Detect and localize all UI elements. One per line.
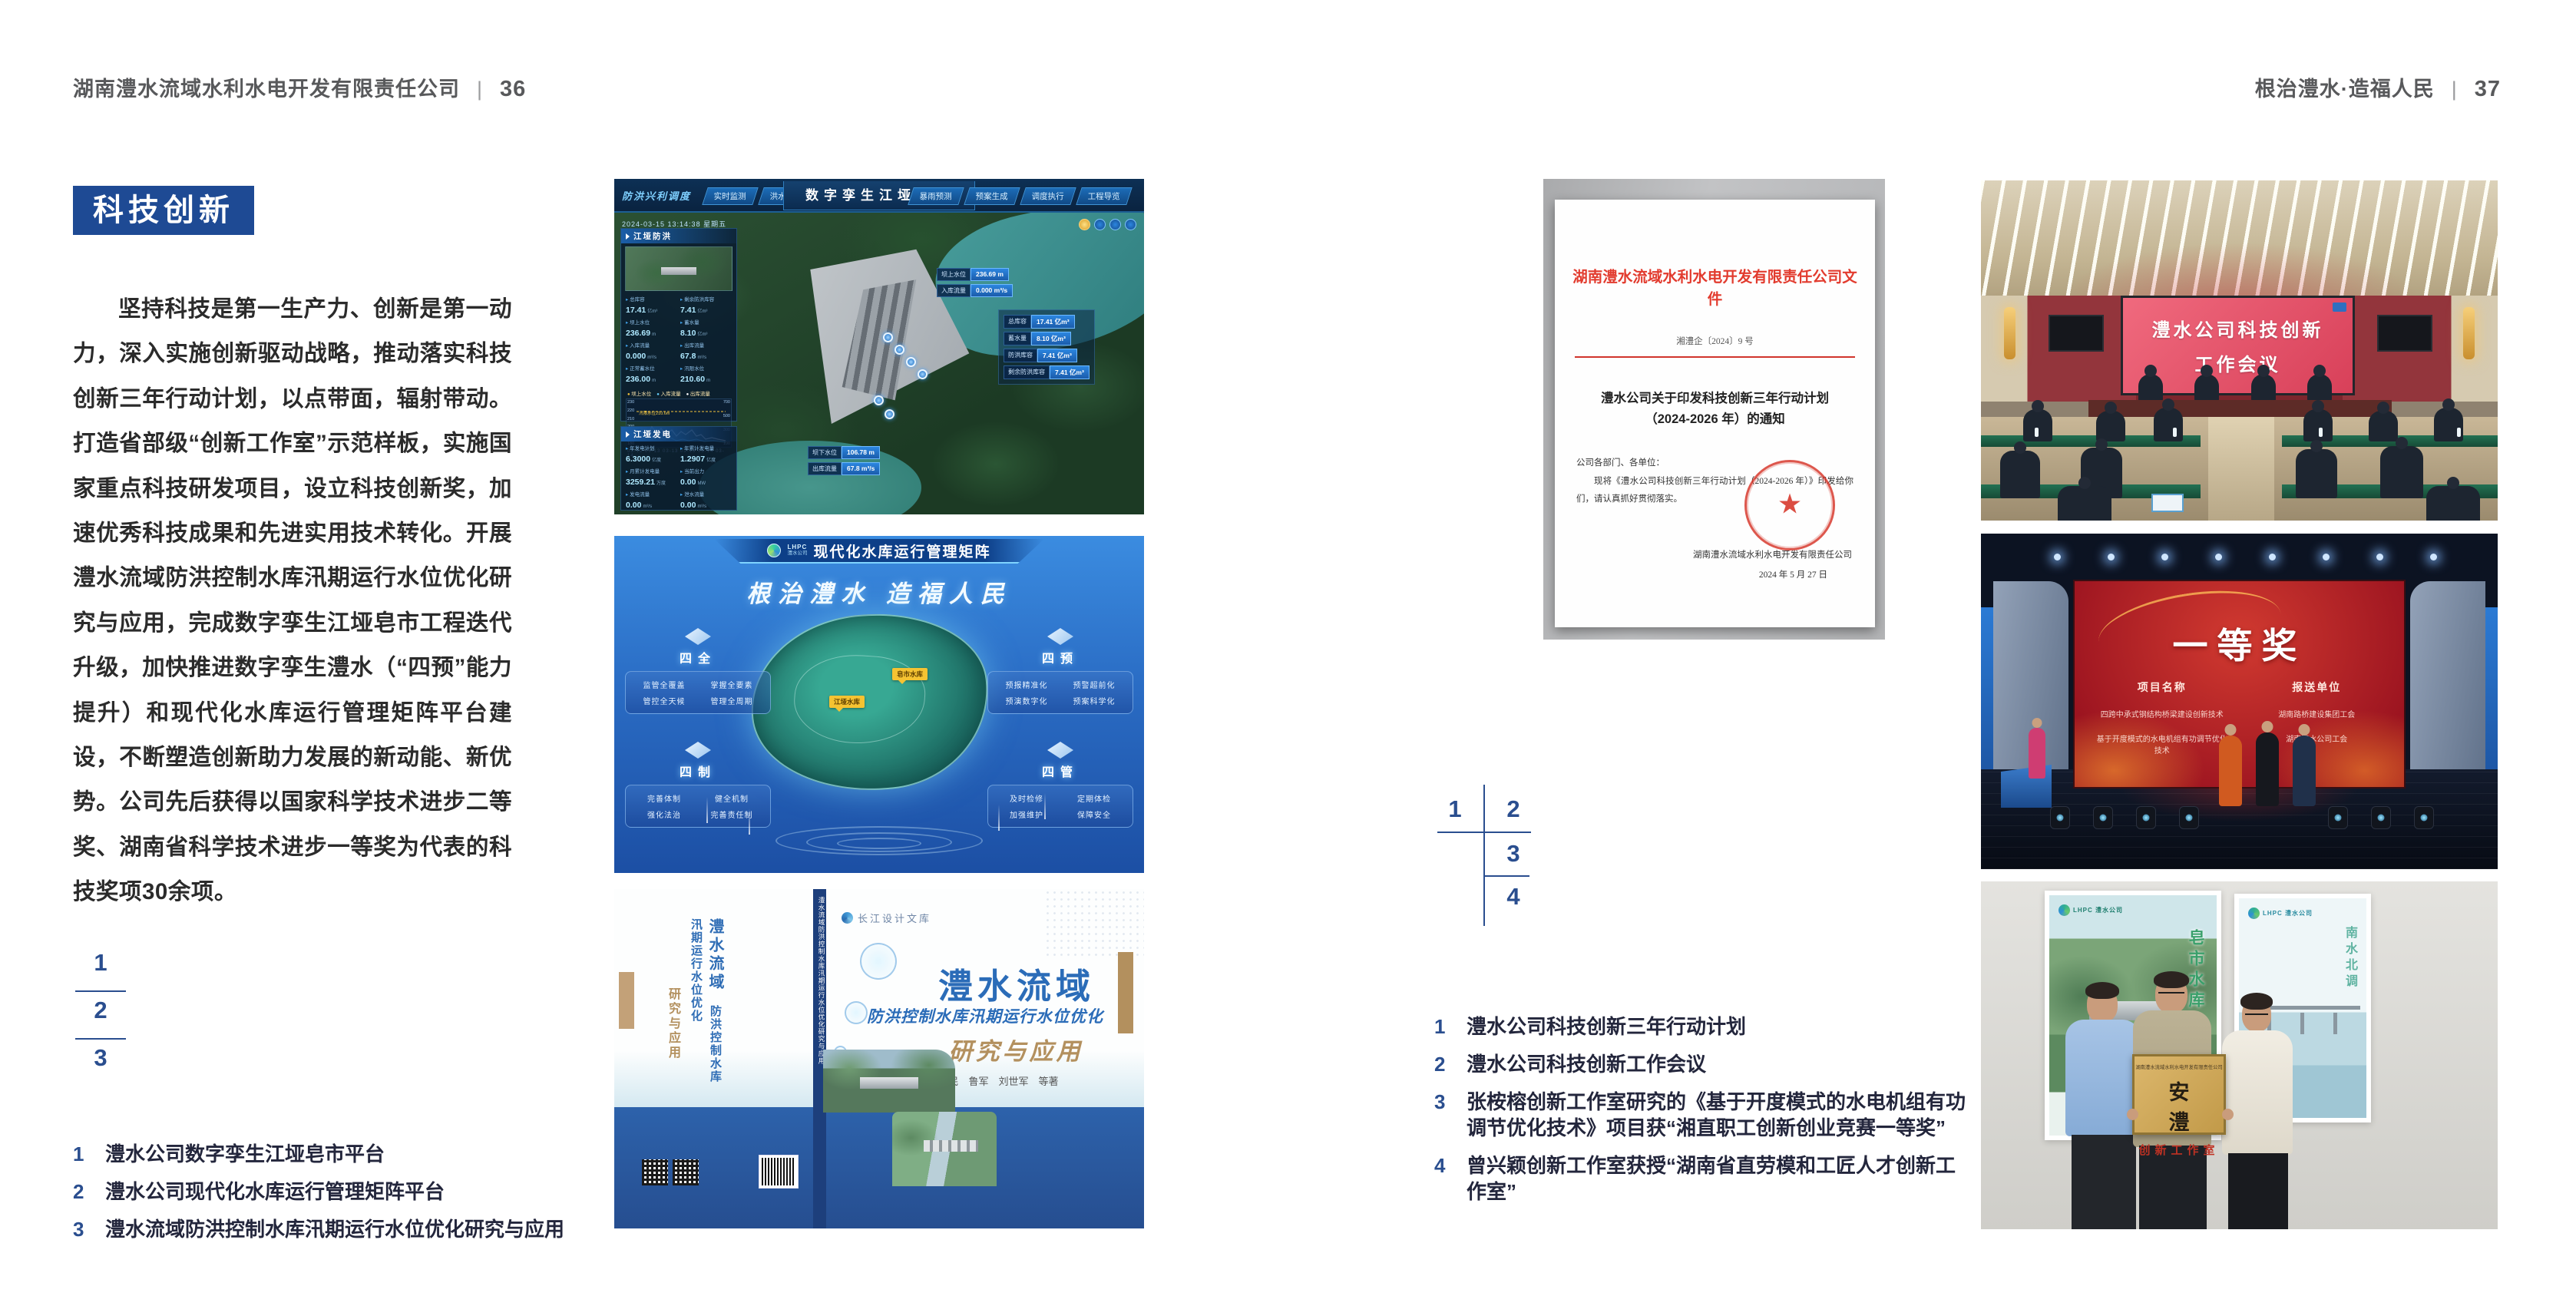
locate-icon[interactable] bbox=[1109, 219, 1121, 230]
bridge-pier bbox=[2333, 1013, 2337, 1034]
flood-control-panel: 江垭防洪 总库容17.41亿m³ 剩余防洪库容7.41亿m³ 坝上水位236.6… bbox=[620, 228, 737, 422]
light-pillar bbox=[1044, 793, 1046, 819]
stat-label: 出库流量 bbox=[680, 341, 732, 349]
quadrant-title: 四全 bbox=[625, 648, 771, 666]
water-bottle bbox=[2319, 428, 2323, 437]
publisher-logo: 长江设计文库 bbox=[842, 911, 931, 925]
person-hand bbox=[2127, 1109, 2138, 1120]
chart-legend: 坝上水位 入库流量 出库流量 bbox=[621, 388, 736, 397]
figure-number-1: 1 bbox=[1431, 795, 1479, 823]
bridge-pier bbox=[2300, 1013, 2304, 1034]
document-signature: 湖南澧水流域水利水电开发有限责任公司 bbox=[1555, 548, 1852, 560]
caption-item: 3张桉榕创新工作室研究的《基于开度模式的水电机组有功调节优化技术》项目获“湘直职… bbox=[1434, 1089, 1972, 1141]
caption-text: 澧水公司数字孪生江垭皂市平台 bbox=[105, 1141, 385, 1167]
stat-label: 剩余防洪库容 bbox=[680, 295, 732, 303]
caption-item: 1澧水公司数字孪生江垭皂市平台 bbox=[73, 1141, 564, 1167]
stat-cell: 汛限水位210.60m bbox=[680, 364, 732, 385]
figure-official-document: 湖南澧水流域水利水电开发有限责任公司文件 湘澧企〔2024〕9 号 澧水公司关于… bbox=[1543, 179, 1885, 640]
figure-number-2: 2 bbox=[1490, 795, 1537, 823]
stage-light-fixture bbox=[2136, 806, 2156, 829]
lhpc-logo-text: LHPC 澧水公司 bbox=[2073, 906, 2123, 914]
quadrant-item: 管理全周期 bbox=[699, 695, 764, 706]
stat-label: 泄水流量 bbox=[680, 490, 732, 498]
quadrant-siyu: 四预 预报精准化预警超前化预演数字化预案科学化 bbox=[987, 628, 1133, 714]
caption-number: 2 bbox=[73, 1179, 105, 1205]
stat-label: 入库流量 bbox=[626, 341, 677, 349]
gate-marker-icon bbox=[906, 357, 916, 367]
quadrant-item: 掌握全要素 bbox=[699, 679, 764, 690]
callout-value: 0.000 m³/s bbox=[971, 284, 1013, 297]
callout-value: 106.78 m bbox=[842, 446, 880, 459]
tab-label: 暴雨预测 bbox=[920, 188, 952, 206]
lhpc-logo-icon bbox=[2248, 908, 2260, 919]
innovation-studio-plaque: 湖南澧水流域水利水电开发有限责任公司 安 澧 创新工作室 bbox=[2132, 1054, 2226, 1135]
tick-label: 230 bbox=[627, 400, 634, 405]
quadrant-item: 加强维护 bbox=[994, 808, 1059, 820]
project-column: 项目名称 四跨中承式钢结构桥梁建设创新技术 基于开度模式的水电机组有功调节优化技… bbox=[2095, 679, 2230, 755]
stat-unit: 亿m³ bbox=[697, 332, 707, 337]
callout-row: 坝上水位236.69 m bbox=[937, 268, 1013, 281]
gate-marker-icon bbox=[918, 369, 928, 379]
flood-stats-grid: 总库容17.41亿m³ 剩余防洪库容7.41亿m³ 坝上水位236.69m 蓄水… bbox=[621, 293, 736, 388]
callout-row: 剩余防洪库容7.41 亿m³ bbox=[1004, 365, 1090, 379]
stat-unit: 亿度 bbox=[652, 458, 661, 463]
caption-item: 1澧水公司科技创新三年行动计划 bbox=[1434, 1013, 1972, 1040]
side-tv-screen bbox=[2377, 315, 2432, 352]
front-title: 澧水流域 bbox=[938, 958, 1095, 1008]
figure-divider-line bbox=[1437, 832, 1531, 833]
stat-value: 7.41 bbox=[680, 306, 696, 315]
winner-silhouette-orange bbox=[2219, 736, 2242, 806]
caption-number: 4 bbox=[1434, 1152, 1467, 1179]
callout-value: 7.41 亿m³ bbox=[1050, 365, 1090, 379]
official-seal-icon bbox=[1744, 460, 1835, 551]
stat-cell: 月累计发电量3259.21万度 bbox=[626, 467, 677, 488]
attendee-silhouette bbox=[2296, 449, 2337, 498]
stat-unit: MW bbox=[697, 481, 706, 486]
tab-label: 工程导览 bbox=[1088, 188, 1120, 206]
tab-label: 预案生成 bbox=[976, 188, 1008, 206]
spotlight-icon bbox=[2376, 554, 2383, 560]
attendee-silhouette bbox=[2380, 446, 2423, 498]
quadrant-panel: 预报精准化预警超前化预演数字化预案科学化 bbox=[987, 671, 1133, 714]
document-red-rule bbox=[1575, 356, 1855, 358]
quadrant-item: 预报精准化 bbox=[994, 679, 1059, 690]
left-page-number: 36 bbox=[500, 77, 526, 101]
settings-icon[interactable] bbox=[1125, 219, 1136, 230]
spotlight-icon bbox=[2323, 554, 2330, 560]
stat-cell: 总库容17.41亿m³ bbox=[626, 295, 677, 316]
person-trousers bbox=[2072, 1135, 2136, 1229]
person-trousers bbox=[2228, 1153, 2288, 1229]
quadrant-item: 监管全覆盖 bbox=[632, 679, 696, 690]
callout-value: 67.8 m³/s bbox=[842, 462, 880, 475]
stat-label: 年发电计划 bbox=[626, 444, 677, 451]
speaker-silhouette bbox=[2251, 374, 2276, 402]
quadrant-item: 保障安全 bbox=[1062, 808, 1126, 820]
stat-unit: m³/s bbox=[643, 504, 652, 509]
column-header: 项目名称 bbox=[2095, 679, 2230, 695]
quadrant-item: 强化法治 bbox=[632, 808, 696, 820]
stat-value: 210.60 bbox=[680, 375, 705, 384]
person-trousers bbox=[2139, 1146, 2207, 1229]
callout-label: 防洪库容 bbox=[1004, 349, 1037, 362]
attendee-silhouette bbox=[2303, 409, 2333, 441]
screen-title-line1: 澧水公司科技创新 bbox=[2152, 315, 2324, 342]
quadrant-title: 四制 bbox=[625, 762, 771, 780]
cube-icon bbox=[685, 742, 711, 759]
brochure-spread: 湖南澧水流域水利水电开发有限责任公司|36 根治澧水·造福人民|37 科技创新 … bbox=[0, 0, 2576, 1306]
stat-unit: m bbox=[706, 379, 710, 383]
qr-code bbox=[673, 1159, 699, 1185]
header-divider: | bbox=[2452, 78, 2458, 101]
stat-value: 67.8 bbox=[680, 352, 696, 361]
figure-divider-line bbox=[1485, 875, 1529, 877]
platform-header: LHPC澧水公司 现代化水库运行管理矩阵 bbox=[714, 539, 1044, 564]
quadrant-panel: 监管全覆盖掌握全要素管控全天候管理全周期 bbox=[625, 671, 771, 714]
gate-marker-icon bbox=[883, 332, 893, 342]
publisher-name: 长江设计文库 bbox=[858, 911, 931, 925]
sail-icon bbox=[626, 233, 630, 240]
caption-item: 4曾兴颖创新工作室获授“湖南省直劳模和工匠人才创新工作室” bbox=[1434, 1152, 1972, 1205]
figure-number-2: 2 bbox=[77, 997, 124, 1024]
stat-cell: 入库流量0.000m³/s bbox=[626, 341, 677, 362]
quadrant-siguan: 四管 及时检修定期体检加强维护保障安全 bbox=[987, 742, 1133, 828]
quadrant-title: 四管 bbox=[987, 762, 1133, 780]
nav-tabs-right: 暴雨预测 预案生成 调度执行 工程导览 bbox=[911, 187, 1135, 205]
panel-header: 江垭发电 bbox=[621, 427, 736, 441]
tab-label: 实时监测 bbox=[714, 188, 746, 206]
quadrant-panel: 及时检修定期体检加强维护保障安全 bbox=[987, 785, 1133, 828]
slogan-calligraphy: 根治澧水 造福人民 bbox=[614, 574, 1144, 609]
caption-number: 2 bbox=[1434, 1051, 1467, 1077]
quadrant-item: 及时检修 bbox=[994, 792, 1059, 804]
callout-row: 蓄水量8.10 亿m³ bbox=[1004, 332, 1090, 346]
gate-marker-icon bbox=[874, 395, 884, 405]
quadrant-title: 四预 bbox=[987, 648, 1133, 666]
tick-label: 220 bbox=[627, 408, 634, 413]
spotlight-icon bbox=[2269, 554, 2276, 560]
right-caption-list: 1澧水公司科技创新三年行动计划 2澧水公司科技创新工作会议 3张桉榕创新工作室研… bbox=[1434, 1013, 1972, 1216]
figure-innovation-studio-plaque: LHPC 澧水公司 皂市水库 LHPC 澧水公司 南水北调 湖南澧水流域水利水电… bbox=[1981, 881, 2498, 1229]
stat-value: 236.69 bbox=[626, 329, 650, 338]
front-subtitle: 防洪控制水库汛期运行水位优化 bbox=[831, 1004, 1139, 1027]
document-title: 澧水公司关于印发科技创新三年行动计划 （2024-2026 年）的通知 bbox=[1555, 388, 1875, 430]
dam-thumbnail-image bbox=[625, 246, 732, 291]
gold-accent-bar bbox=[1118, 952, 1133, 1033]
back-cover-subtitle: 研究与应用 bbox=[663, 987, 682, 1060]
caption-number: 3 bbox=[73, 1216, 105, 1242]
callout-row: 坝下水位106.78 m bbox=[808, 446, 880, 459]
tick-label: 210 bbox=[627, 417, 634, 422]
dam-photo-2 bbox=[892, 1112, 997, 1186]
caption-number: 1 bbox=[73, 1141, 105, 1167]
figure-digital-twin-dashboard: 防洪兴利调度 实时监测 洪水预报 防洪预警 数字孪生江垭皂市 暴雨预测 预案生成… bbox=[614, 179, 1144, 514]
callout-label: 蓄水量 bbox=[1004, 332, 1031, 346]
lhpc-logo-icon bbox=[767, 544, 781, 557]
caption-text: 张桉榕创新工作室研究的《基于开度模式的水电机组有功调节优化技术》项目获“湘直职工… bbox=[1467, 1089, 1972, 1141]
person-head bbox=[2087, 987, 2118, 1023]
caption-item: 2澧水公司科技创新工作会议 bbox=[1434, 1051, 1972, 1077]
avatar-icon[interactable] bbox=[1079, 219, 1090, 230]
caption-text: 澧水公司科技创新三年行动计划 bbox=[1467, 1013, 1746, 1040]
stat-label: 坝上水位 bbox=[626, 318, 677, 326]
left-caption-list: 1澧水公司数字孪生江垭皂市平台 2澧水公司现代化水库运行管理矩阵平台 3澧水流域… bbox=[73, 1141, 564, 1254]
speaker-silhouette bbox=[2307, 374, 2332, 402]
section-badge: 科技创新 bbox=[73, 186, 254, 235]
stage-light-fixture bbox=[2093, 806, 2113, 829]
qr-code bbox=[642, 1159, 668, 1185]
caption-number: 3 bbox=[1434, 1089, 1467, 1115]
quadrant-siquan: 四全 监管全覆盖掌握全要素管控全天候管理全周期 bbox=[625, 628, 771, 714]
speaker-silhouette bbox=[2194, 374, 2219, 402]
unit-item: 湖南路桥建设集团工会 bbox=[2250, 708, 2385, 719]
layers-icon[interactable] bbox=[1094, 219, 1106, 230]
stat-unit: 万度 bbox=[656, 481, 666, 486]
legend-item: 入库流量 bbox=[656, 389, 680, 397]
stat-cell: 正常蓄水位236.00m bbox=[626, 364, 677, 385]
left-page-header: 湖南澧水流域水利水电开发有限责任公司|36 bbox=[73, 72, 526, 102]
spotlight-icon bbox=[2054, 554, 2061, 560]
figure-number-3: 3 bbox=[1490, 840, 1537, 868]
water-bottle bbox=[2035, 428, 2039, 437]
figure-divider-line bbox=[1483, 785, 1485, 926]
platform-title: 现代化水库运行管理矩阵 bbox=[813, 541, 990, 561]
meeting-ceiling bbox=[1981, 180, 2498, 296]
callout-label: 坝上水位 bbox=[937, 268, 971, 281]
first-prize-title: 一等奖 bbox=[2075, 618, 2404, 669]
body-paragraph: 坚持科技是第一生产力、创新是第一动力，深入实施创新驱动战略，推动落实科技创新三年… bbox=[73, 287, 512, 915]
document-title-line2: （2024-2026 年）的通知 bbox=[1555, 409, 1875, 430]
stat-cell: 年发电计划6.3000亿度 bbox=[626, 444, 677, 465]
stat-unit: m bbox=[652, 332, 656, 337]
dam-photo-1 bbox=[823, 1050, 955, 1113]
logo-subtext: 澧水公司 bbox=[787, 551, 807, 557]
quadrant-item: 预警超前化 bbox=[1062, 679, 1126, 690]
right-page-header: 根治澧水·造福人民|37 bbox=[2255, 72, 2501, 102]
stat-unit: m³/s bbox=[697, 355, 706, 360]
publisher-globe-icon bbox=[842, 912, 853, 924]
cube-icon bbox=[1047, 628, 1073, 645]
water-bottle bbox=[2457, 428, 2461, 437]
light-pillar bbox=[998, 805, 1000, 831]
motto-text: 根治澧水·造福人民 bbox=[2255, 78, 2435, 101]
spotlight-icon bbox=[2108, 554, 2115, 560]
callout-value: 8.10 亿m³ bbox=[1031, 332, 1071, 346]
stat-value: 8.10 bbox=[680, 329, 696, 338]
project-item: 基于开度模式的水电机组有功调节优化技术 bbox=[2095, 732, 2230, 755]
tab-realtime-monitoring[interactable]: 实时监测 bbox=[702, 187, 758, 205]
callout-upstream: 坝上水位236.69 m 入库流量0.000 m³/s bbox=[937, 268, 1013, 300]
tissue-box bbox=[2151, 494, 2184, 512]
stat-label: 总库容 bbox=[626, 295, 677, 303]
caption-item: 3澧水流域防洪控制水库汛期运行水位优化研究与应用 bbox=[73, 1216, 564, 1242]
side-tv-screen bbox=[2049, 315, 2104, 352]
quadrant-item: 预演数字化 bbox=[994, 695, 1059, 706]
head-table bbox=[2088, 400, 2392, 418]
callout-label: 总库容 bbox=[1004, 315, 1031, 329]
spine-title: 澧水流域防洪控制水库汛期运行水位优化研究与应用 bbox=[813, 897, 826, 1065]
speaker-silhouette bbox=[2138, 374, 2163, 402]
attendee-silhouette bbox=[2096, 411, 2125, 441]
stat-label: 发电流量 bbox=[626, 490, 677, 498]
barcode bbox=[759, 1155, 799, 1189]
stat-unit: 亿m³ bbox=[697, 309, 707, 314]
stat-cell: 剩余防洪库容7.41亿m³ bbox=[680, 295, 732, 316]
callout-label: 剩余防洪库容 bbox=[1004, 365, 1050, 379]
plaque-org-line: 湖南澧水流域水利水电开发有限责任公司 bbox=[2135, 1063, 2224, 1070]
document-title-line1: 澧水公司关于印发科技创新三年行动计划 bbox=[1555, 388, 1875, 409]
halftone-pattern bbox=[1044, 889, 1144, 960]
logo-acronym: LHPC bbox=[787, 544, 807, 551]
spotlight-icon bbox=[2161, 554, 2168, 560]
quadrant-item: 完善体制 bbox=[632, 792, 696, 804]
caption-item: 2澧水公司现代化水库运行管理矩阵平台 bbox=[73, 1179, 564, 1205]
quadrant-item: 管控全天候 bbox=[632, 695, 696, 706]
stat-label: 正常蓄水位 bbox=[626, 364, 677, 372]
figure-reservoir-matrix-platform: LHPC澧水公司 现代化水库运行管理矩阵 根治澧水 造福人民 江垭水库 皂市水库… bbox=[614, 536, 1144, 873]
wall-lamp bbox=[2004, 307, 2015, 359]
ripple-ring bbox=[837, 838, 921, 849]
map-tag-zaoshi: 皂市水库 bbox=[892, 668, 928, 680]
back-cover-title: 澧水流域 防洪控制水库汛期运行水位优化 bbox=[688, 918, 726, 1095]
stat-label: 汛限水位 bbox=[680, 364, 732, 372]
column-header: 报送单位 bbox=[2250, 679, 2385, 695]
panel-header: 江垭防洪 bbox=[621, 229, 736, 243]
stage-light-fixture bbox=[2414, 806, 2434, 829]
attendee-silhouette bbox=[2154, 408, 2183, 441]
stat-label: 月累计发电量 bbox=[626, 467, 677, 474]
stat-value: 0.00 bbox=[680, 501, 696, 510]
stage-light-fixture bbox=[2371, 806, 2391, 829]
right-page-number: 37 bbox=[2475, 77, 2501, 101]
company-name: 湖南澧水流域水利水电开发有限责任公司 bbox=[73, 78, 460, 101]
legend-item: 坝上水位 bbox=[627, 389, 651, 397]
threshold-annotation: 汛限水位210.6m bbox=[639, 410, 670, 416]
callout-value: 236.69 m bbox=[971, 268, 1009, 281]
dashboard-toolbar-icons bbox=[1079, 219, 1136, 230]
spotlight-icon bbox=[2430, 554, 2437, 560]
attendee-silhouette bbox=[2369, 411, 2398, 441]
stage-light-fixture bbox=[2328, 806, 2348, 829]
stat-value: 0.00 bbox=[626, 501, 641, 510]
callout-downstream: 坝下水位106.78 m 出库流量67.8 m³/s bbox=[808, 446, 880, 478]
callout-label: 坝下水位 bbox=[808, 446, 842, 459]
stat-cell: 坝上水位236.69m bbox=[626, 318, 677, 339]
stat-label: 年累计发电量 bbox=[680, 444, 732, 451]
host-silhouette bbox=[2029, 728, 2045, 779]
stat-value: 0.00 bbox=[680, 478, 696, 487]
document-date: 2024 年 5 月 27 日 bbox=[1555, 568, 1827, 580]
cube-icon bbox=[685, 628, 711, 645]
gate-marker-icon bbox=[894, 345, 904, 355]
callout-value: 17.41 亿m³ bbox=[1031, 315, 1075, 329]
stat-value: 6.3000 bbox=[626, 455, 650, 464]
stat-value: 0.000 bbox=[626, 352, 646, 361]
lhpc-logo-text: LHPC澧水公司 bbox=[787, 544, 807, 557]
stat-cell: 出库流量67.8m³/s bbox=[680, 341, 732, 362]
tab-rainstorm-forecast[interactable]: 暴雨预测 bbox=[908, 187, 964, 205]
spotlight-icon bbox=[2215, 554, 2222, 560]
stat-cell: 泄水流量0.00m³/s bbox=[680, 490, 732, 511]
presenter-silhouette-suit bbox=[2256, 732, 2279, 806]
back-cover-tab bbox=[619, 972, 634, 1029]
panel-title: 江垭发电 bbox=[633, 428, 672, 440]
project-item: 四跨中承式钢结构桥梁建设创新技术 bbox=[2095, 708, 2230, 719]
callout-row: 出库流量67.8 m³/s bbox=[808, 462, 880, 475]
figure-divider-line bbox=[75, 1038, 126, 1040]
plaque-name: 安 澧 bbox=[2135, 1076, 2224, 1136]
caption-number: 1 bbox=[1434, 1013, 1467, 1040]
stat-unit: m³/s bbox=[697, 504, 706, 509]
screen-logo-chip bbox=[2333, 303, 2346, 312]
winner-silhouette-blue bbox=[2293, 736, 2316, 806]
stat-cell: 当前出力0.00MW bbox=[680, 467, 732, 488]
cube-icon bbox=[1047, 742, 1073, 759]
front-cover: 长江设计文库 澧水流域 防洪控制水库汛期运行水位优化 研究与应用 洪兴骏 沈坤民… bbox=[826, 889, 1144, 1228]
stat-label: 当前出力 bbox=[680, 467, 732, 474]
lhpc-logo: LHPC 澧水公司 bbox=[2058, 904, 2123, 916]
wall-lamp bbox=[2463, 307, 2475, 359]
attendee-silhouette bbox=[2058, 486, 2111, 521]
callout-row: 入库流量0.000 m³/s bbox=[937, 284, 1013, 297]
light-pillar bbox=[749, 808, 750, 835]
tab-label: 调度执行 bbox=[1032, 188, 1064, 206]
stat-value: 1.2907 bbox=[680, 455, 705, 464]
quadrant-item: 预案科学化 bbox=[1062, 695, 1126, 706]
tab-dispatch-execution[interactable]: 调度执行 bbox=[1020, 187, 1076, 205]
poster-calligraphy: 皂市水库 bbox=[2184, 929, 2207, 1012]
stat-cell: 蓄水量8.10亿m³ bbox=[680, 318, 732, 339]
center-aisle bbox=[2208, 417, 2274, 521]
caption-text: 澧水公司科技创新工作会议 bbox=[1467, 1051, 1706, 1077]
water-droplet bbox=[860, 943, 897, 980]
stat-value: 17.41 bbox=[626, 306, 646, 315]
stat-cell: 年累计发电量1.2907亿度 bbox=[680, 444, 732, 465]
caption-text: 澧水流域防洪控制水库汛期运行水位优化研究与应用 bbox=[105, 1216, 564, 1242]
tab-project-tour[interactable]: 工程导览 bbox=[1076, 187, 1132, 205]
document-paper: 湖南澧水流域水利水电开发有限责任公司文件 湘澧企〔2024〕9 号 澧水公司关于… bbox=[1555, 200, 1875, 627]
power-generation-panel: 江垭发电 年发电计划6.3000亿度 年累计发电量1.2907亿度 月累计发电量… bbox=[620, 426, 737, 511]
figure-book-cover: 澧水流域 防洪控制水库汛期运行水位优化 研究与应用 澧水流域防洪控制水库汛期运行… bbox=[614, 889, 1144, 1228]
attendee-silhouette bbox=[2000, 451, 2040, 498]
sail-icon bbox=[626, 431, 630, 438]
caption-text: 曾兴颖创新工作室获授“湖南省直劳模和工匠人才创新工作室” bbox=[1467, 1152, 1972, 1205]
back-title-main: 澧水流域 bbox=[706, 918, 723, 992]
callout-row: 总库容17.41 亿m³ bbox=[1004, 315, 1090, 329]
plaque-type: 创新工作室 bbox=[2135, 1142, 2224, 1158]
figure-number-3: 3 bbox=[77, 1044, 124, 1072]
callout-label: 入库流量 bbox=[937, 284, 971, 297]
stage-light-fixture bbox=[2050, 806, 2070, 829]
quadrant-item: 健全机制 bbox=[699, 792, 764, 804]
callout-row: 防洪库容7.41 亿m³ bbox=[1004, 349, 1090, 362]
tab-plan-generation[interactable]: 预案生成 bbox=[964, 187, 1020, 205]
person-head-glasses bbox=[2242, 998, 2271, 1032]
person-hand bbox=[2222, 1109, 2234, 1120]
callout-capacity-panel: 总库容17.41 亿m³ 蓄水量8.10 亿m³ 防洪库容7.41 亿m³ 剩余… bbox=[998, 309, 1095, 385]
dashboard-top-nav: 防洪兴利调度 实时监测 洪水预报 防洪预警 数字孪生江垭皂市 暴雨预测 预案生成… bbox=[614, 179, 1144, 213]
figure-number-1: 1 bbox=[77, 949, 124, 977]
quadrant-item: 完善责任制 bbox=[699, 808, 764, 820]
stat-unit: m³/s bbox=[647, 355, 656, 360]
callout-value: 7.41 亿m³ bbox=[1037, 349, 1077, 362]
legend-item: 出库流量 bbox=[686, 389, 710, 397]
stat-value: 3259.21 bbox=[626, 478, 655, 487]
figure-award-ceremony: 一等奖 项目名称 四跨中承式钢结构桥梁建设创新技术 基于开度模式的水电机组有功调… bbox=[1981, 534, 2498, 869]
stat-unit: 亿度 bbox=[706, 458, 716, 463]
document-red-header: 湖南澧水流域水利水电开发有限责任公司文件 bbox=[1555, 264, 1875, 309]
